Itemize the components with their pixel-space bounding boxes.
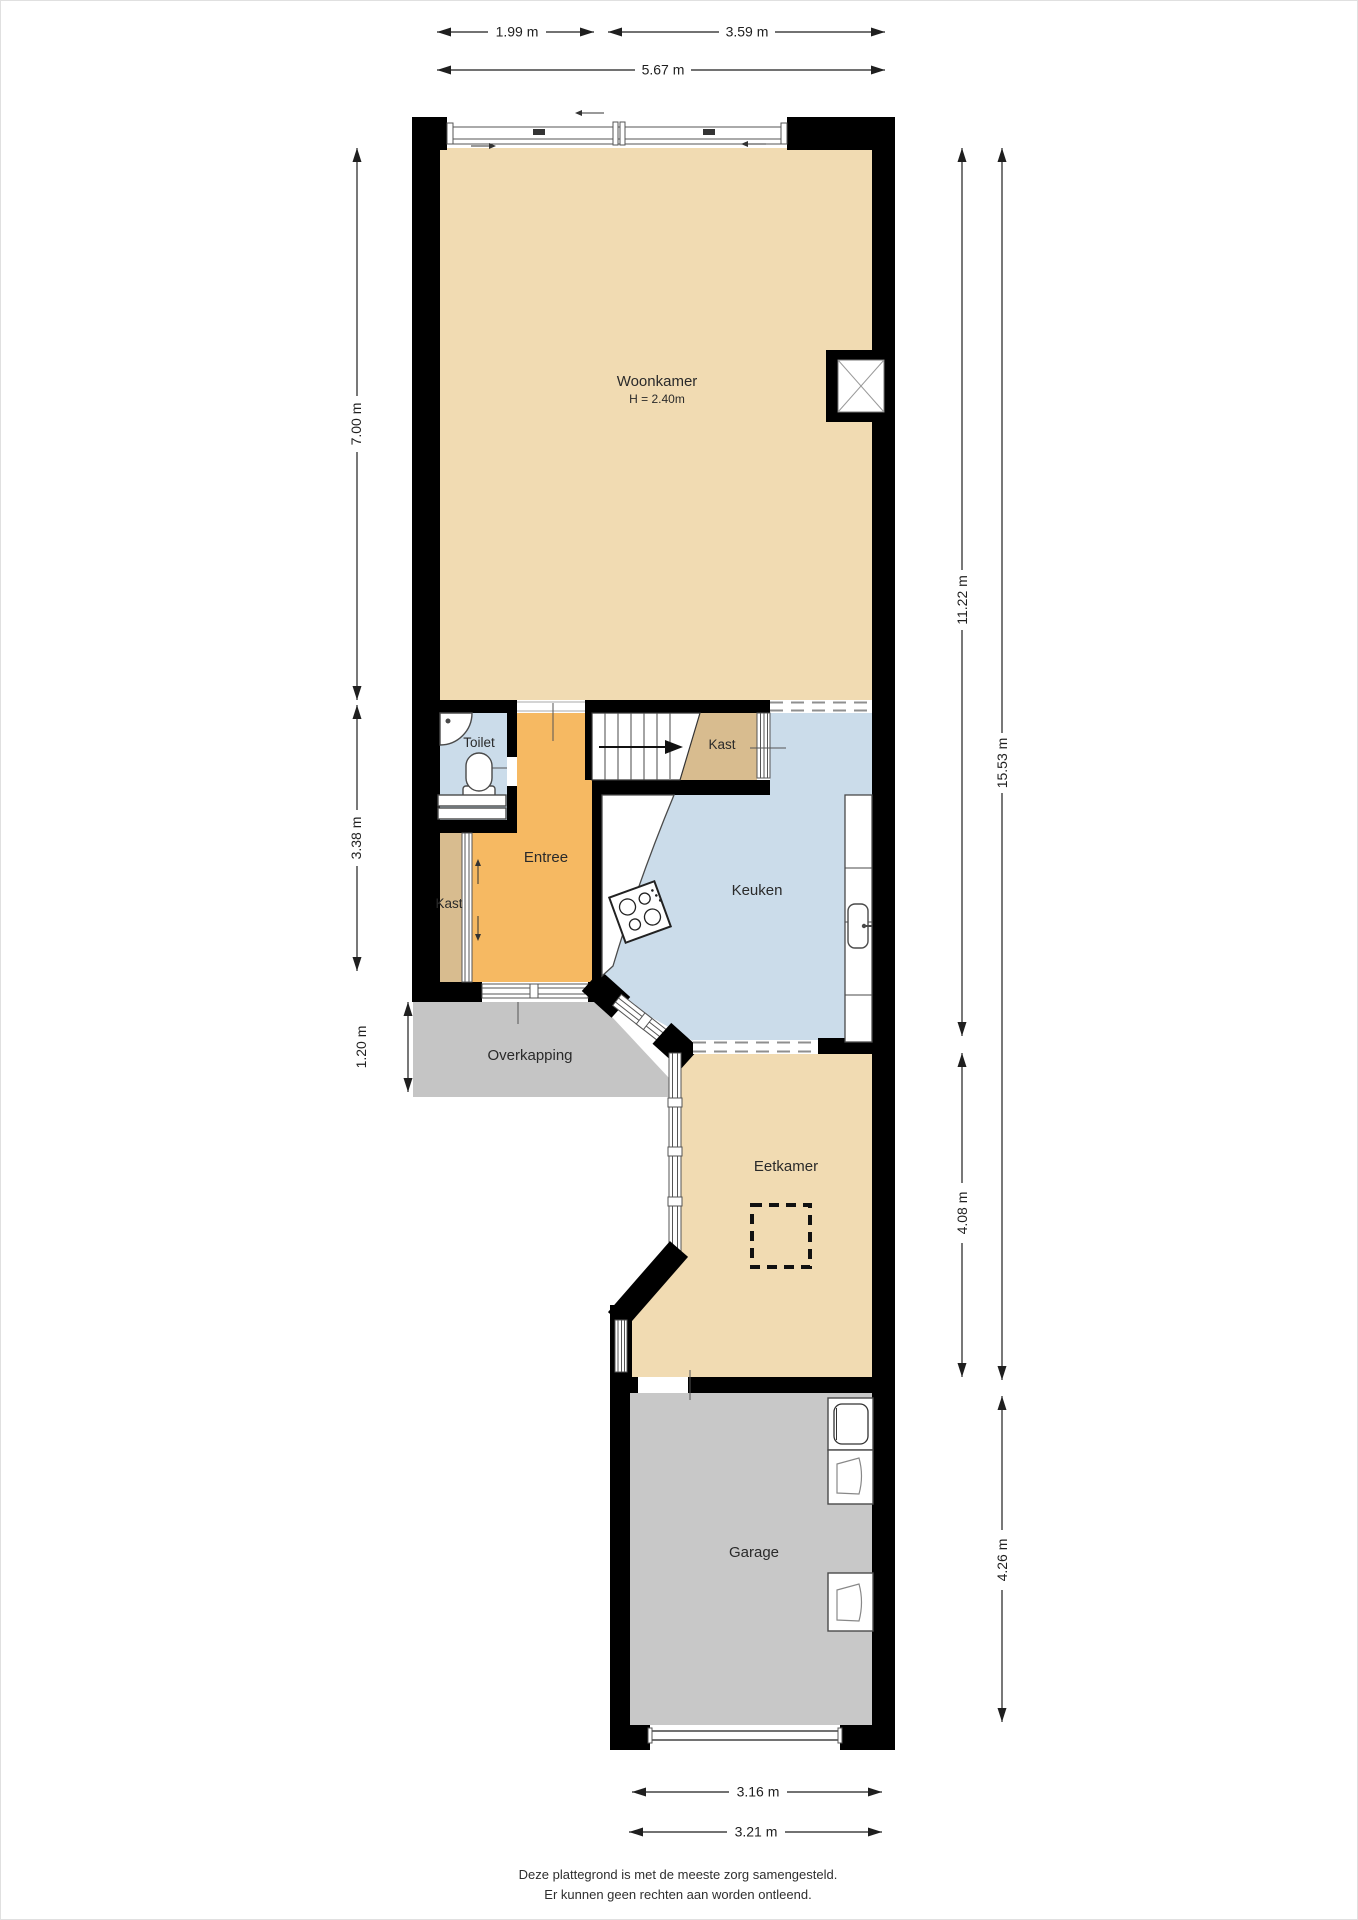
window-latch (703, 129, 715, 135)
shaft (826, 350, 895, 422)
window-mullion (447, 123, 453, 144)
floorplan-page: Woonkamer H = 2.40m Toilet Kast Kast Ent… (0, 0, 1358, 1920)
dim-top-0: 1.99 m (496, 24, 539, 40)
toilet-bowl-icon (466, 753, 492, 791)
wall-toilet-b (507, 786, 517, 820)
garage-label: Garage (729, 1544, 779, 1561)
dim-right-3: 4.26 m (994, 1539, 1010, 1582)
dim-bottom-1: 3.21 m (735, 1824, 778, 1840)
woonkamer-floor (440, 148, 872, 700)
wall-entree-bottom-a (440, 982, 482, 1002)
toilet-radiator-icon (438, 808, 506, 819)
keuken-label: Keuken (732, 882, 783, 899)
wall-woonkamer-bottom-b (585, 700, 770, 713)
dim-left-2: 1.20 m (353, 1026, 369, 1069)
dim-top-1: 3.59 m (726, 24, 769, 40)
dim-right-2: 4.08 m (954, 1192, 970, 1235)
entree-label: Entree (524, 849, 568, 866)
window-mullion (613, 122, 618, 145)
window-latch (533, 129, 545, 135)
kast-entree-label: Kast (435, 896, 462, 911)
wall-garage-bottom-a (610, 1725, 650, 1750)
wall-garage-bottom-b (840, 1725, 895, 1750)
disclaimer-line2: Er kunnen geen rechten aan worden ontlee… (544, 1887, 811, 1902)
wall-top-left-block (412, 117, 447, 150)
floorplan-canvas: Woonkamer H = 2.40m Toilet Kast Kast Ent… (0, 0, 1358, 1920)
toilet-radiator-icon (438, 795, 506, 806)
woonkamer-label: Woonkamer (617, 373, 698, 390)
kast-hal-label: Kast (708, 737, 735, 752)
wall-under-stairs (592, 780, 770, 795)
window-mullion (781, 123, 787, 144)
eetkamer-label: Eetkamer (754, 1158, 818, 1175)
dim-top-2: 5.67 m (642, 62, 685, 78)
wall-left (412, 117, 440, 1002)
wall-entree-keuken (592, 795, 602, 985)
garage-door-opening (638, 1377, 688, 1393)
wall-garage-left (610, 1393, 630, 1750)
wall-toilet-divider (412, 820, 517, 833)
wall-woonkamer-bottom-a (440, 700, 517, 713)
dim-right-1: 15.53 m (994, 738, 1010, 789)
wall-toilet-a (507, 713, 517, 757)
dim-left-1: 3.38 m (348, 817, 364, 860)
disclaimer-line1: Deze plattegrond is met de meeste zorg s… (519, 1867, 838, 1882)
woonkamer-height-label: H = 2.40m (629, 392, 685, 406)
toilet-label: Toilet (463, 735, 495, 750)
dim-right-0: 11.22 m (954, 575, 970, 625)
dim-left-0: 7.00 m (348, 403, 364, 446)
wall-top-right-block (787, 117, 895, 150)
window-mullion (620, 122, 625, 145)
overkapping-label: Overkapping (487, 1047, 572, 1064)
arrow-left-icon (575, 110, 582, 116)
dim-bottom-0: 3.16 m (737, 1784, 780, 1800)
faucet-icon (446, 719, 451, 724)
room-woonkamer (440, 148, 872, 700)
